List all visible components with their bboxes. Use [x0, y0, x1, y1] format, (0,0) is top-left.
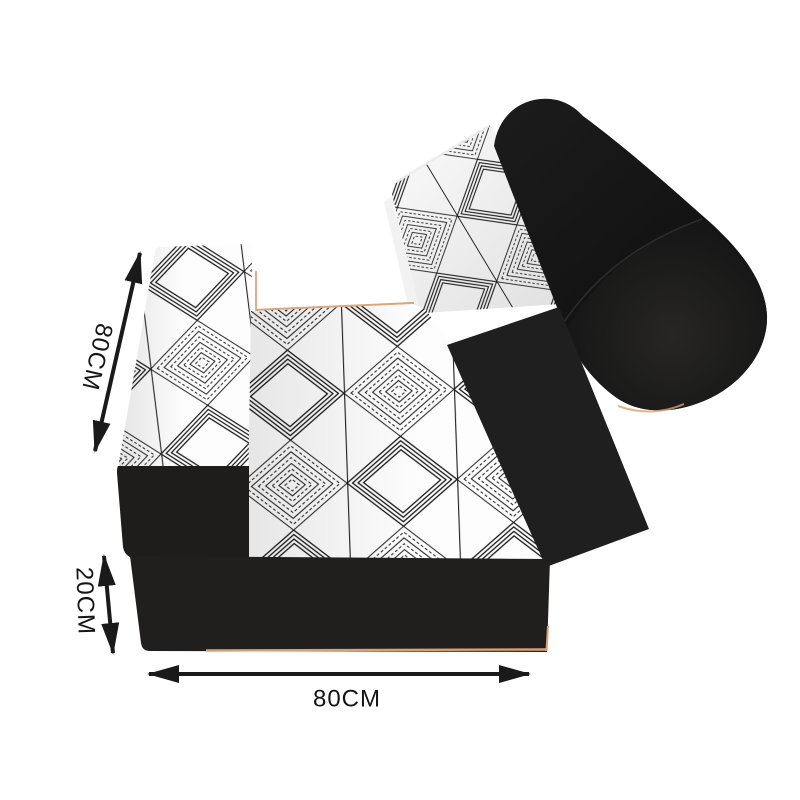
base-box [130, 556, 550, 652]
support-block [117, 466, 249, 559]
product-dimension-image: 80CM 20CM 80CM [0, 0, 800, 800]
diagram-canvas: 80CM 20CM 80CM [0, 0, 800, 800]
base-width-label: 80CM [313, 686, 381, 713]
base-bottom-trim [206, 650, 546, 651]
base-height-label: 20CM [70, 567, 99, 636]
